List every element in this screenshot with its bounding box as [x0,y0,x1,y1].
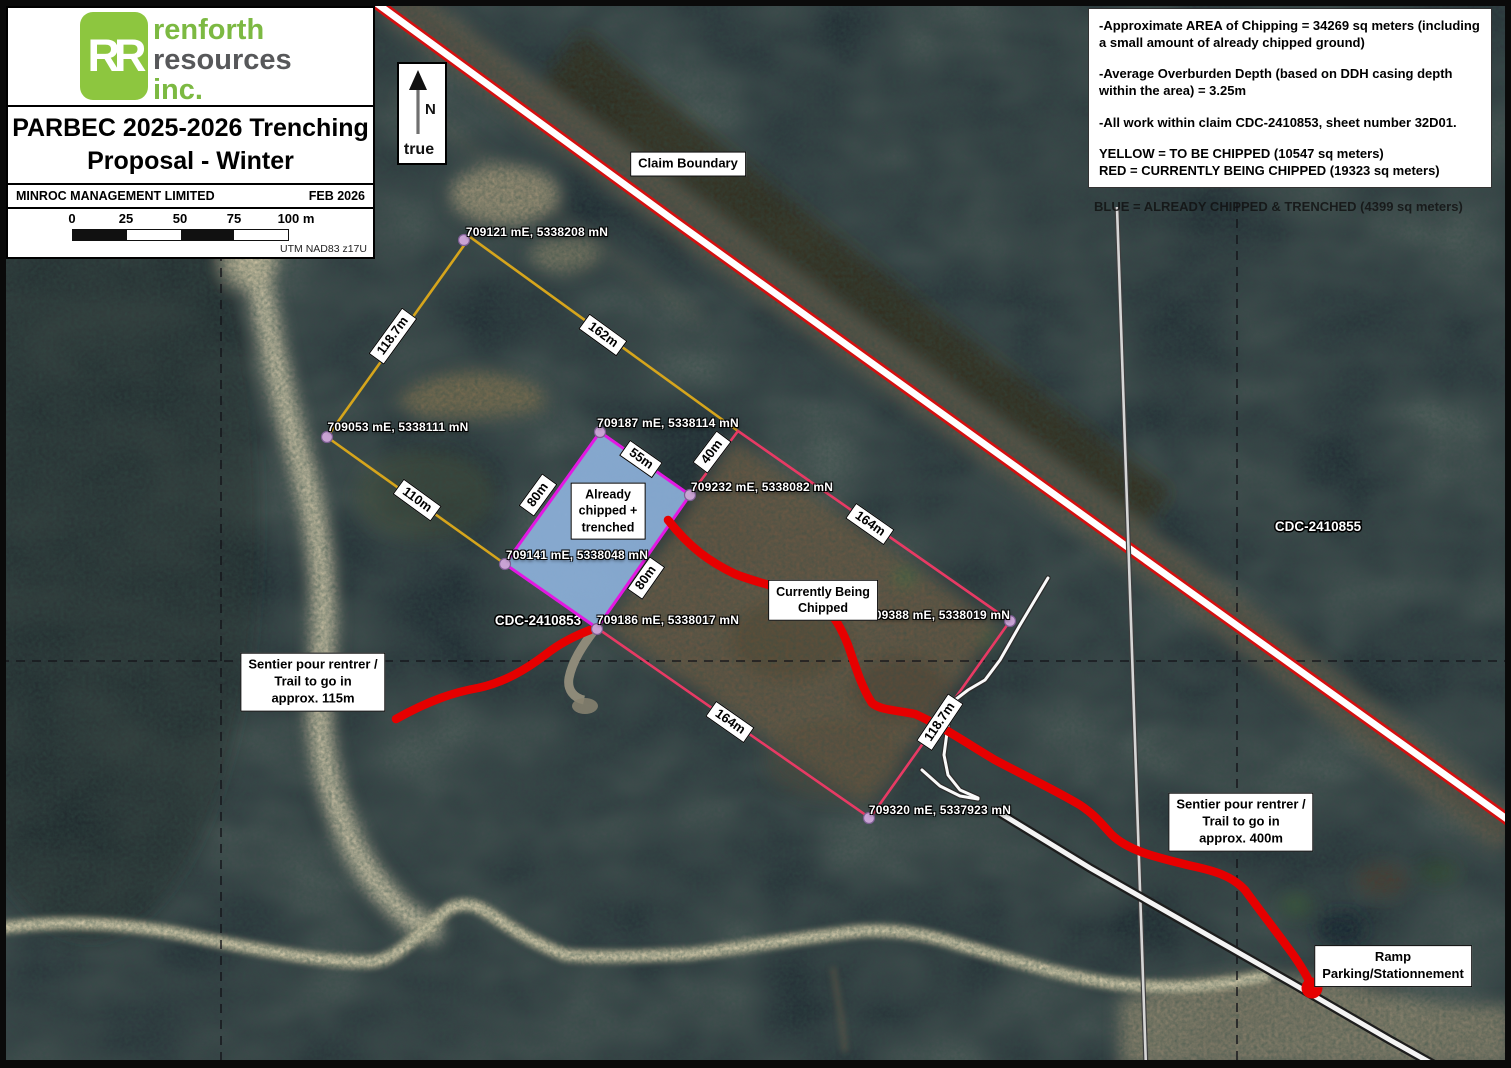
trail-400m-label: Sentier pour rentrer / Trail to go in ap… [1168,793,1313,852]
already-line1: Already [579,487,638,503]
coord-709187: 709187 mE, 5338114 mN [597,416,739,430]
north-arrow-icon: N true [399,64,441,159]
trail400-line3: approx. 400m [1176,830,1305,847]
logo-name-line2: resources [153,46,292,75]
legend-yellow: YELLOW = TO BE CHIPPED (10547 sq meters) [1099,146,1481,163]
ramp-parking-label: Ramp Parking/Stationnement [1314,945,1472,987]
coord-709232: 709232 mE, 5338082 mN [691,480,833,494]
coord-709320: 709320 mE, 5337923 mN [869,803,1011,817]
already-line2: chipped + [579,503,638,519]
frame-top [0,0,1511,6]
scale-tick-25: 25 [119,211,133,226]
coord-709053: 709053 mE, 5338111 mN [328,420,469,434]
trail115-line1: Sentier pour rentrer / [248,657,377,674]
coord-709141: 709141 mE, 5338048 mN [506,548,648,562]
ramp-line1: Ramp [1322,949,1464,966]
north-arrow: N true [397,62,447,165]
scale-tick-50: 50 [173,211,187,226]
currently-line2: Chipped [776,600,870,616]
company-row: MINROC MANAGEMENT LIMITED FEB 2026 [8,183,373,207]
trail400-line1: Sentier pour rentrer / [1176,797,1305,814]
scale-bar-section: 0 25 50 75 100 m UTM NAD83 z17U [8,207,373,257]
info-area-chipping: -Approximate AREA of Chipping = 34269 sq… [1099,18,1481,51]
claim-id-2410855: CDC-2410855 [1275,519,1362,534]
already-chipped-label: Already chipped + trenched [571,483,646,540]
info-overburden: -Average Overburden Depth (based on DDH … [1099,66,1481,99]
claim-boundary-text: Claim Boundary [638,156,738,171]
currently-chipped-label: Currently Being Chipped [768,580,878,621]
trail400-line2: Trail to go in [1176,814,1305,831]
coord-709186: 709186 mE, 5338017 mN [597,613,739,627]
trail115-line3: approx. 115m [248,690,377,707]
renforth-logo-icon: RR [80,12,148,100]
logo-name-line3: inc. [153,76,203,105]
north-n-label: N [425,101,436,118]
already-line3: trenched [579,519,638,535]
map-title: PARBEC 2025-2026 Trenching Proposal - Wi… [8,105,373,183]
info-claim: -All work within claim CDC-2410853, shee… [1099,115,1481,132]
scale-bar [72,229,289,241]
trail-115m-label: Sentier pour rentrer / Trail to go in ap… [240,653,385,712]
map-date: FEB 2026 [309,189,365,203]
logo-name-line1: renforth [153,16,264,45]
north-true-label: true [404,141,434,158]
trail115-line2: Trail to go in [248,674,377,691]
title-block: RR renforth resources inc. PARBEC 2025-2… [6,6,375,259]
ramp-line2: Parking/Stationnement [1322,966,1464,983]
scale-tick-75: 75 [227,211,241,226]
frame-left [0,0,6,1068]
legend-blue-overflow: BLUE = ALREADY CHIPPED & TRENCHED (4399 … [1094,199,1463,214]
map-page: CDC-2410853 CDC-2410855 [0,0,1511,1068]
coord-709121: 709121 mE, 5338208 mN [466,225,608,239]
scale-tick-100: 100 m [278,211,315,226]
scale-tick-0: 0 [68,211,75,226]
frame-bottom [0,1060,1511,1068]
coord-709388: 709388 mE, 5338019 mN [868,608,1010,622]
map-title-line1: PARBEC 2025-2026 Trenching [8,112,373,145]
currently-line1: Currently Being [776,584,870,600]
datum-label: UTM NAD83 z17U [280,243,367,255]
logo-section: RR renforth resources inc. [8,8,373,105]
company-name: MINROC MANAGEMENT LIMITED [16,189,215,203]
legend-red: RED = CURRENTLY BEING CHIPPED (19323 sq … [1099,163,1481,180]
info-box: -Approximate AREA of Chipping = 34269 sq… [1088,8,1492,188]
frame-right [1505,0,1511,1068]
claim-boundary-label: Claim Boundary [630,152,746,177]
map-title-line2: Proposal - Winter [8,145,373,178]
claim-id-2410853: CDC-2410853 [495,613,582,628]
